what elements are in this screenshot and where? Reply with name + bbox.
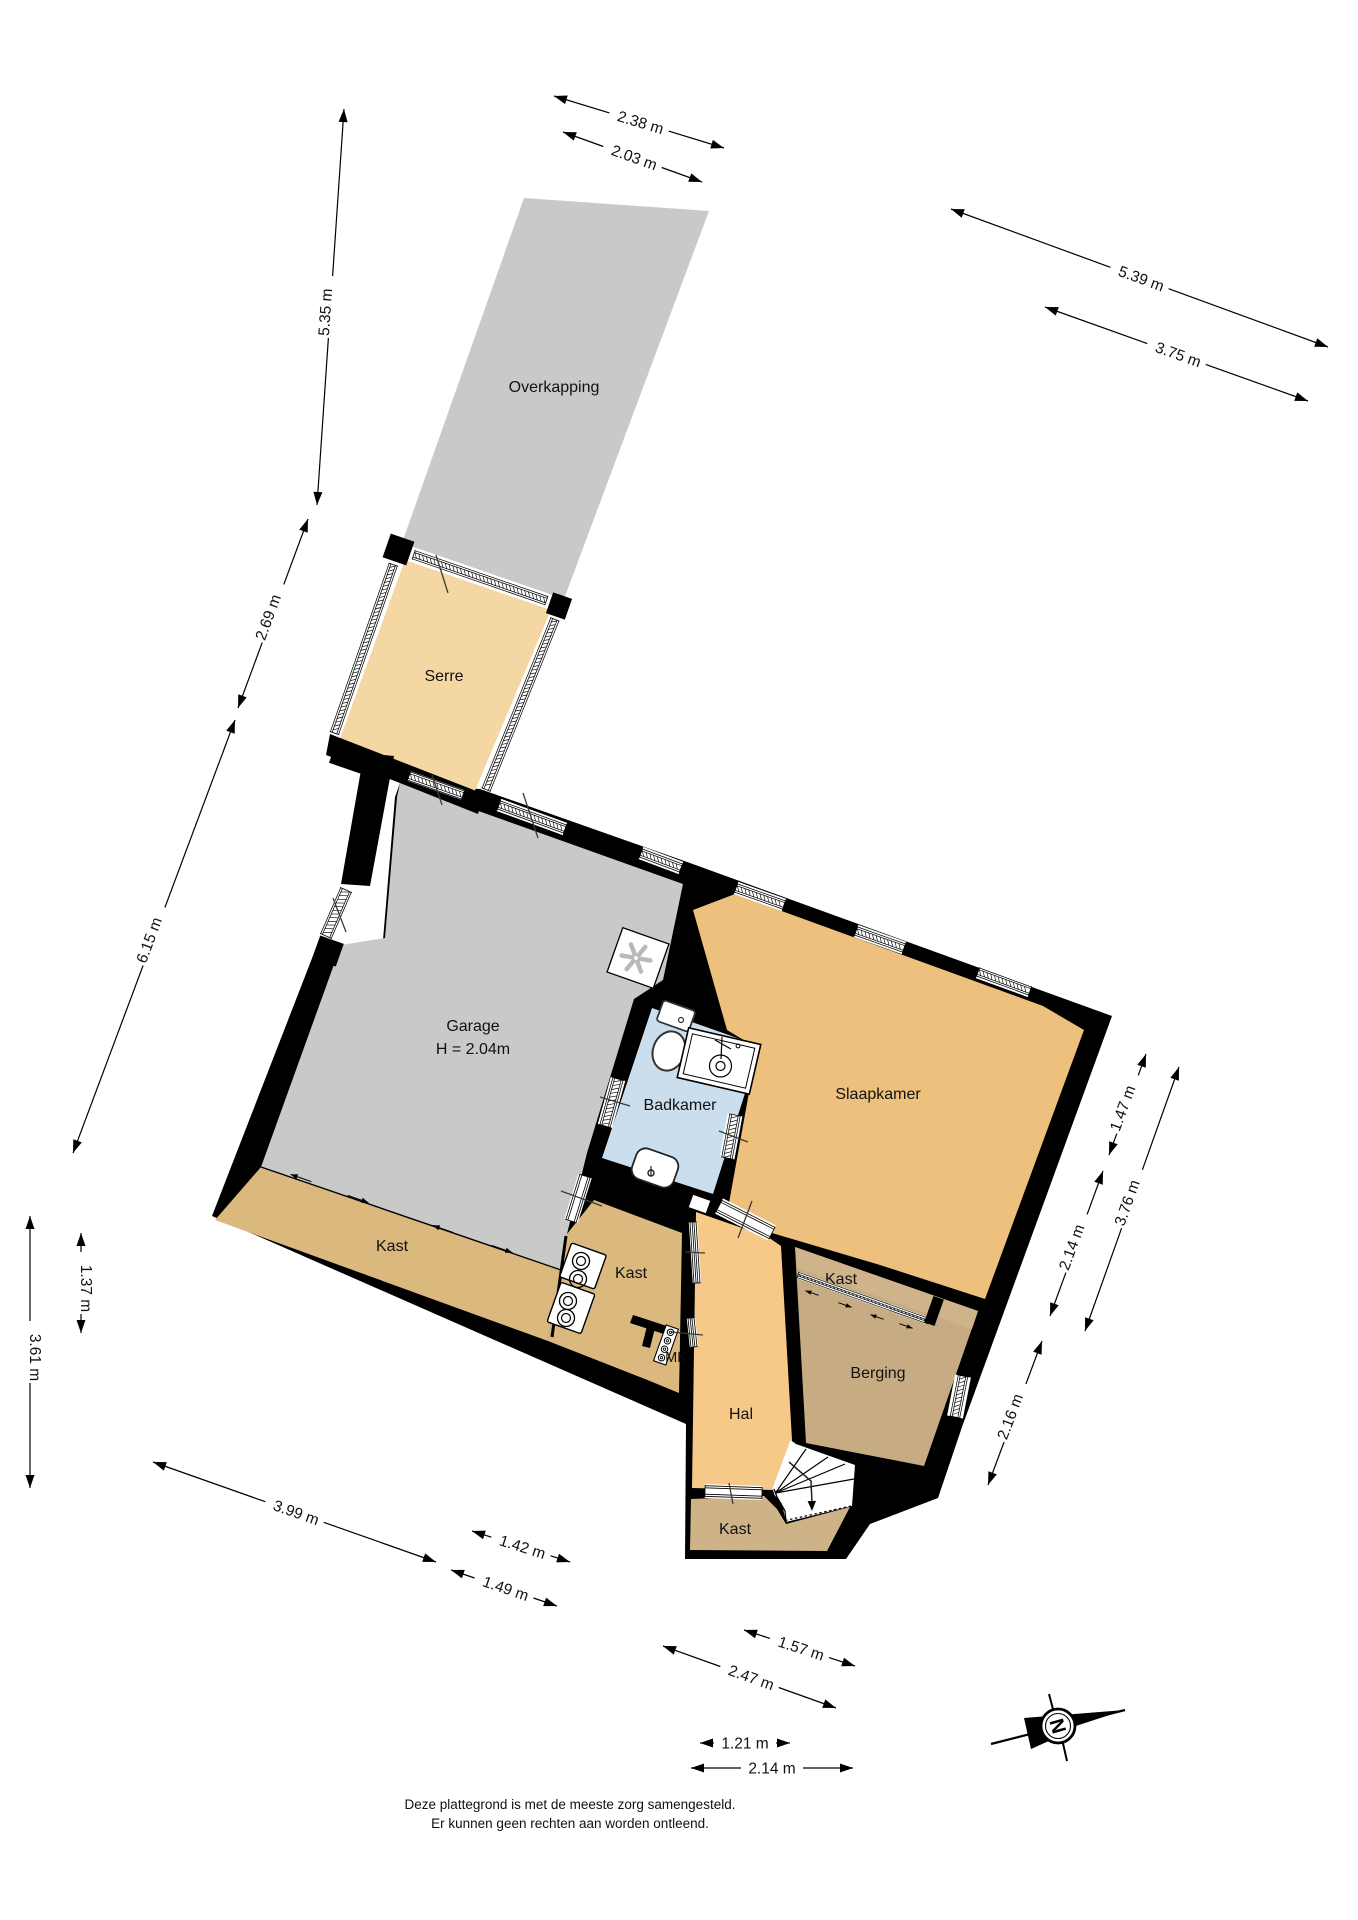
svg-text:1.21 m: 1.21 m	[721, 1736, 768, 1753]
svg-text:Kast: Kast	[376, 1238, 409, 1255]
svg-text:H = 2.04m: H = 2.04m	[436, 1041, 510, 1058]
svg-text:Er kunnen geen rechten aan wor: Er kunnen geen rechten aan worden ontlee…	[431, 1816, 709, 1831]
svg-text:Badkamer: Badkamer	[644, 1097, 718, 1114]
svg-text:1.37 m: 1.37 m	[77, 1265, 94, 1312]
svg-text:Kast: Kast	[615, 1265, 648, 1282]
svg-text:Kast: Kast	[719, 1521, 752, 1538]
svg-text:2.14 m: 2.14 m	[748, 1761, 795, 1778]
svg-text:Serre: Serre	[424, 668, 463, 685]
svg-text:Overkapping: Overkapping	[509, 379, 600, 396]
svg-text:MK: MK	[665, 1350, 687, 1366]
svg-text:Garage: Garage	[446, 1018, 499, 1035]
svg-text:5.35 m: 5.35 m	[316, 288, 336, 336]
svg-text:Slaapkamer: Slaapkamer	[835, 1086, 921, 1103]
svg-text:Deze plattegrond is met de mee: Deze plattegrond is met de meeste zorg s…	[405, 1797, 736, 1812]
svg-text:3.61 m: 3.61 m	[26, 1334, 43, 1381]
svg-text:Berging: Berging	[850, 1365, 905, 1382]
svg-text:Hal: Hal	[729, 1406, 753, 1423]
